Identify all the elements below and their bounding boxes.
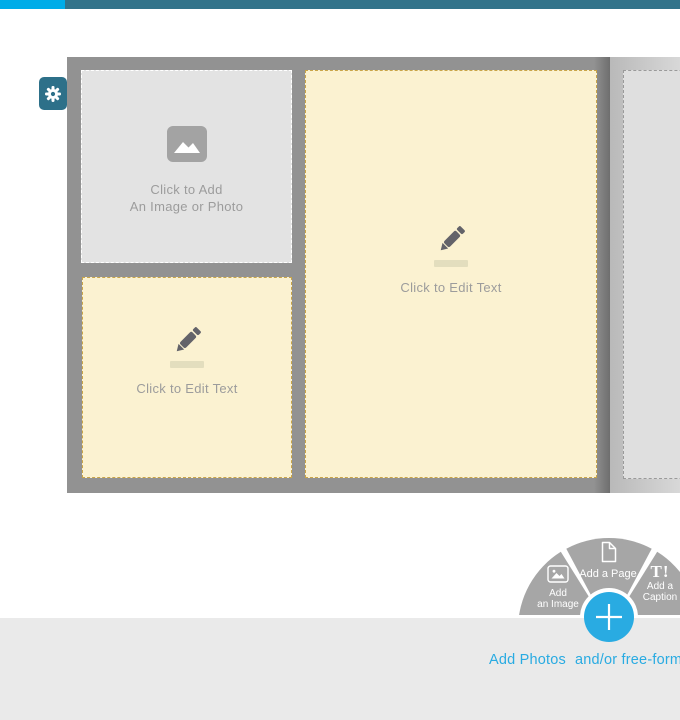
top-bar-cyan-segment xyxy=(0,0,65,9)
page-settings-button[interactable] xyxy=(39,77,67,110)
top-progress-bar xyxy=(0,0,680,9)
pencil-underline xyxy=(170,361,204,368)
text-placeholder-small[interactable]: Click to Edit Text xyxy=(82,277,292,478)
page-icon xyxy=(599,541,617,563)
top-bar-teal-segment xyxy=(65,0,680,9)
photo-tray xyxy=(0,618,680,720)
add-caption-label-line1: Add a xyxy=(630,581,680,592)
footer-hint: Add Photosand/or free-form text xyxy=(489,652,680,668)
add-image-label-line1: Add xyxy=(528,588,588,599)
pencil-underline xyxy=(434,260,468,267)
pencil-icon xyxy=(433,224,469,258)
pencil-icon xyxy=(169,325,205,359)
photobook-editor: Click to Add An Image or Photo Click to … xyxy=(0,0,680,720)
photo-placeholder-line1: Click to Add xyxy=(130,181,244,198)
text-placeholder-large-label: Click to Edit Text xyxy=(400,279,501,296)
footer-add-photos: Add Photos xyxy=(489,652,566,668)
text-placeholder-small-label: Click to Edit Text xyxy=(136,380,237,397)
photo-placeholder-line2: An Image or Photo xyxy=(130,198,244,215)
text-placeholder-large[interactable]: Click to Edit Text xyxy=(305,70,597,478)
footer-hint-tail: and/or free-form text xyxy=(575,652,680,668)
photo-placeholder[interactable]: Click to Add An Image or Photo xyxy=(81,70,292,263)
gear-icon xyxy=(44,85,62,103)
menu-item-add-caption[interactable]: T! Add a Caption xyxy=(630,562,680,603)
add-menu-button[interactable] xyxy=(584,592,634,642)
plus-icon xyxy=(594,602,624,632)
add-caption-label-line2: Caption xyxy=(630,592,680,603)
image-icon xyxy=(167,126,207,162)
caption-icon: T! xyxy=(630,562,680,581)
next-page-placeholder[interactable] xyxy=(623,70,680,479)
add-image-label-line2: an Image xyxy=(528,599,588,610)
image-icon xyxy=(547,565,569,583)
